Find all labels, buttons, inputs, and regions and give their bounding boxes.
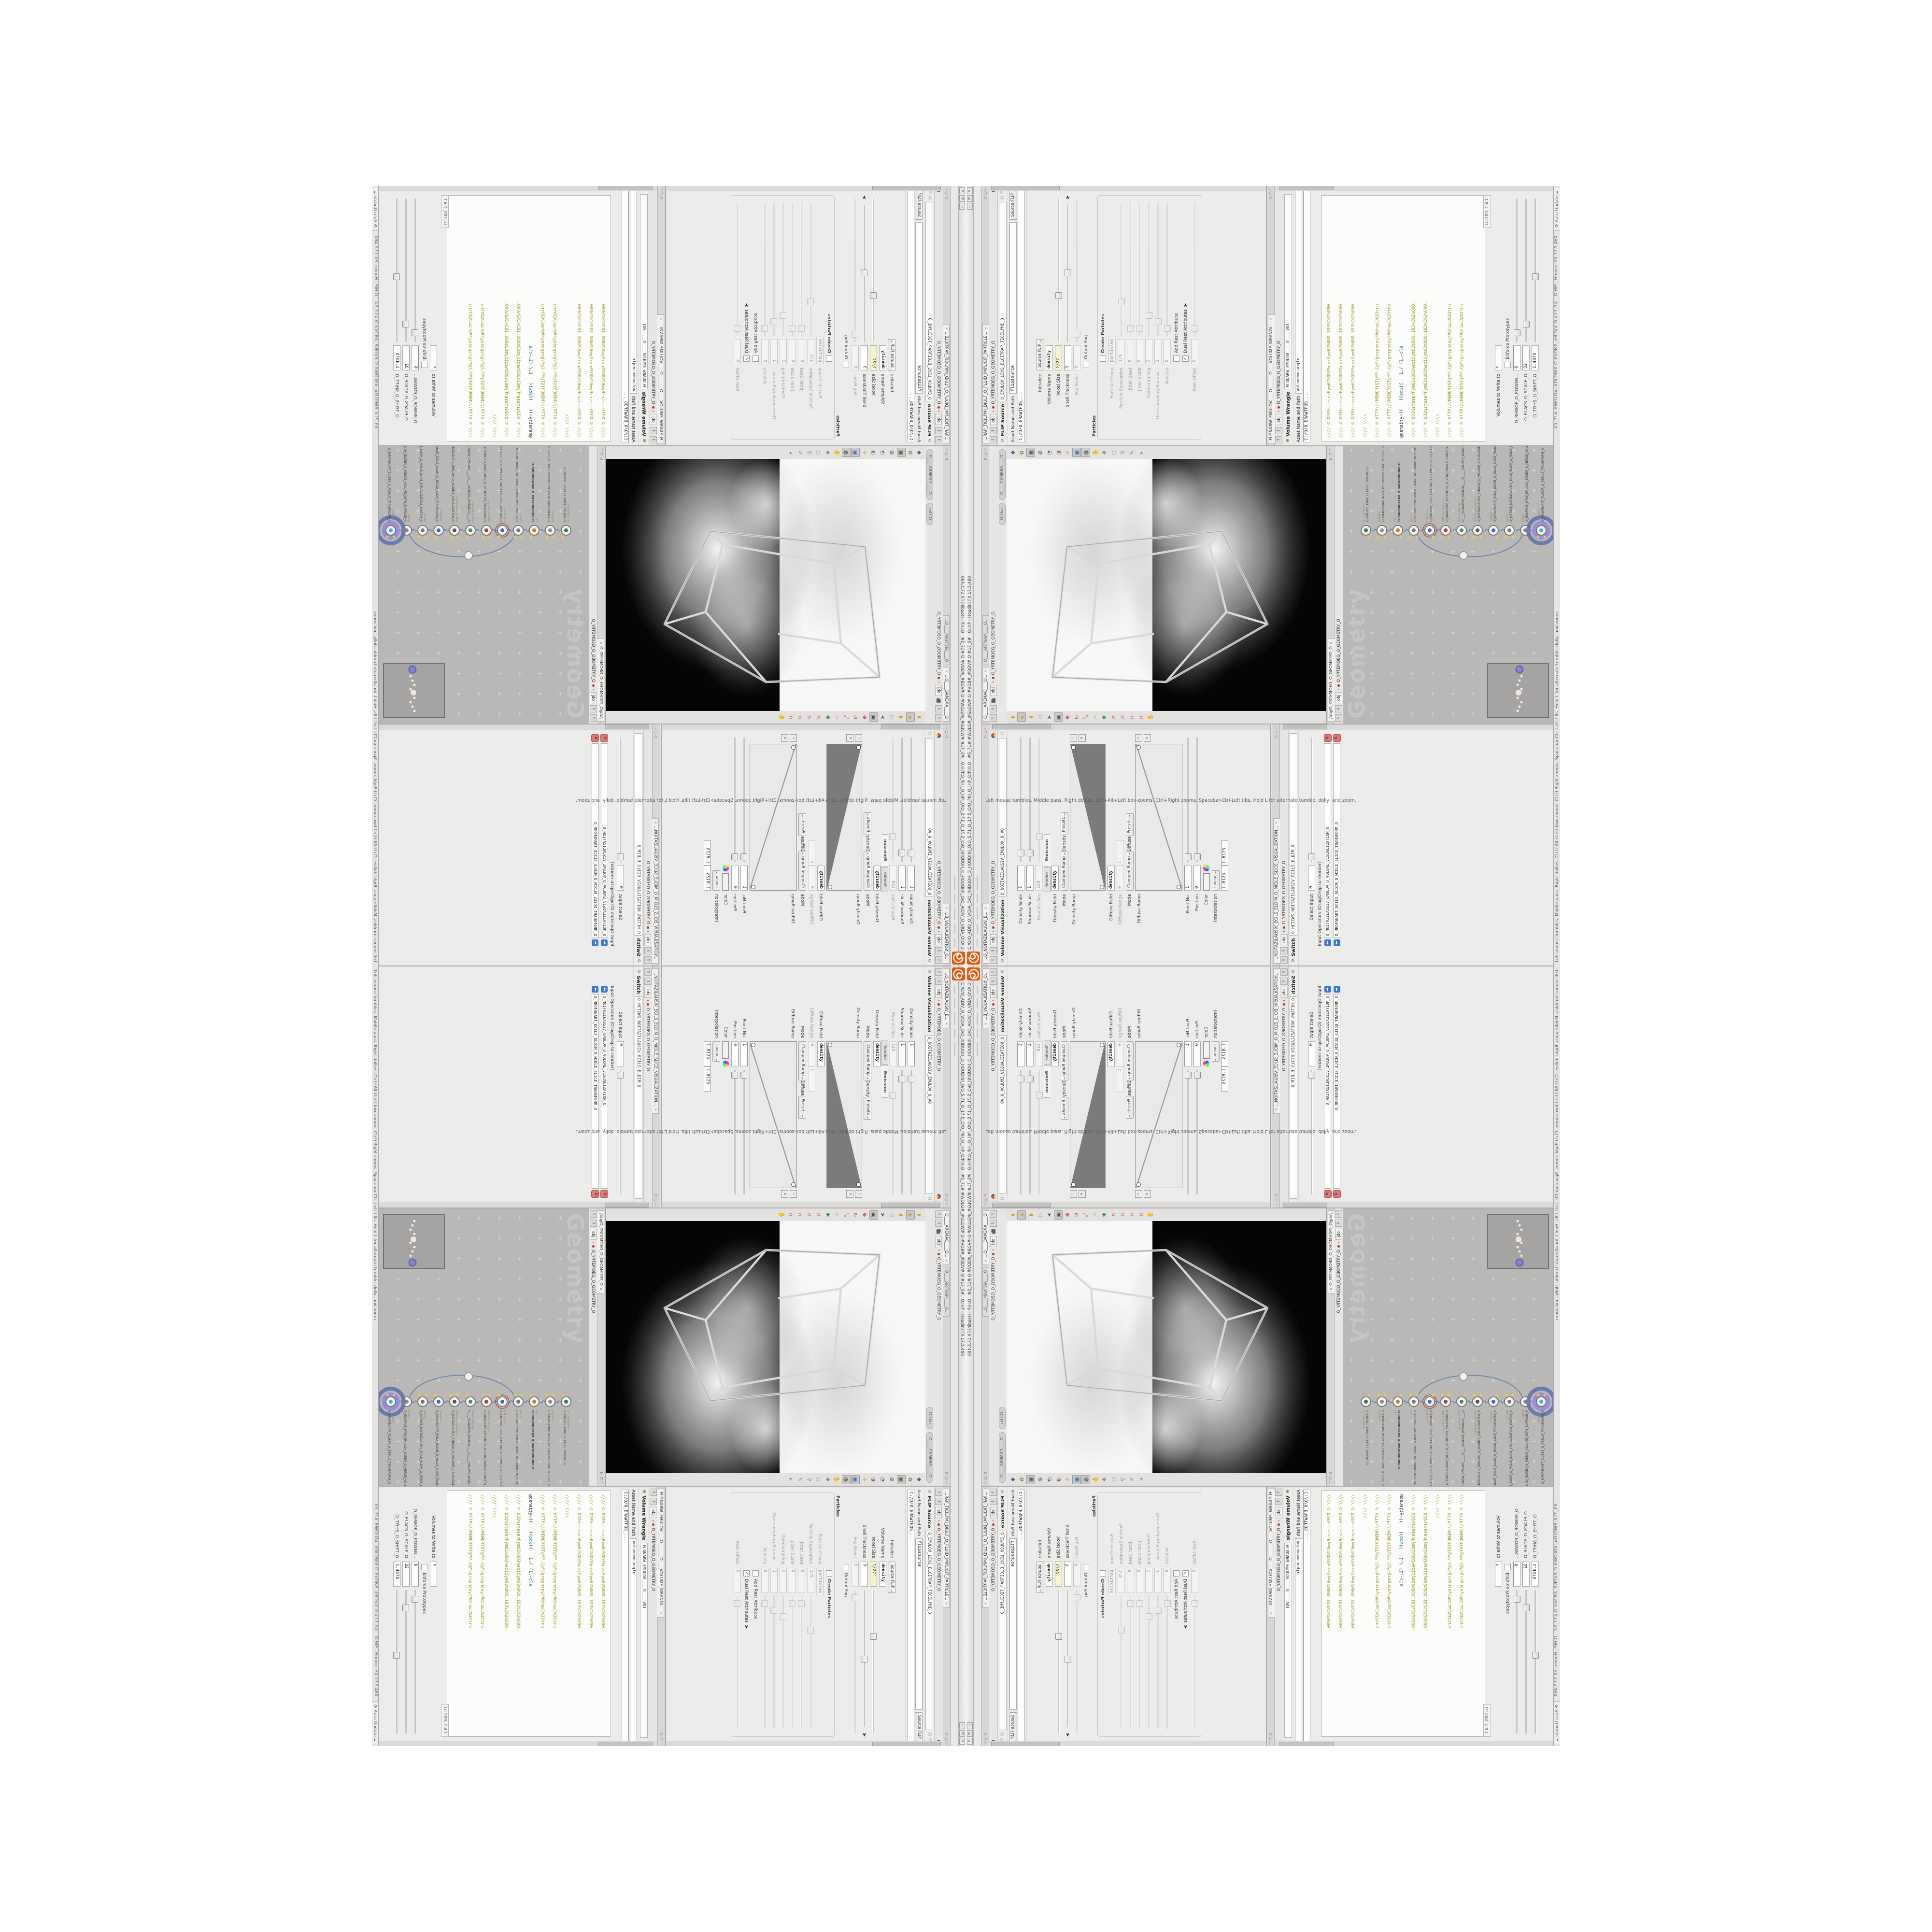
param-field[interactable]: particles xyxy=(816,337,824,364)
ortho-pill[interactable]: Ortho xyxy=(999,1407,1006,1429)
toolbar-icon[interactable]: ▸ xyxy=(787,1475,796,1484)
tab-network[interactable]: /obj/O_YRTEMOEG_O_GEOMETRY_O xyxy=(1329,1213,1334,1286)
toolbar-icon[interactable]: ✛ xyxy=(860,1475,869,1484)
param-field[interactable]: 1/27 xyxy=(1055,1562,1062,1587)
param-field[interactable]: 1 xyxy=(898,1041,906,1066)
slider-knob[interactable] xyxy=(403,321,410,327)
pane-tabstrip[interactable]: ELGNARW_EMULOV____O_______O____VOLUME_WR… xyxy=(1267,1487,1275,1746)
network-node[interactable]: SwitchO_HCTIWS_YRTEMOEG_LANRETXE_LANRETN… xyxy=(1409,446,1419,539)
window-titlebar[interactable]: C:/O/O_ADIV_O_VIDIA_O/O_INIDUOH_O_HOUDIN… xyxy=(958,186,966,966)
network-node[interactable]: SwitchO_HCTIWS_NOITAZILAUSIV_ECILS_ELDIM… xyxy=(418,446,427,539)
menu-item[interactable] xyxy=(954,907,955,920)
pane-pathbar[interactable]: ⬆ ⬇ obj › O_YRTEMOEG_O_GEOMETRY_O xyxy=(934,186,943,445)
toolbar-icon[interactable]: ◔ xyxy=(1045,1475,1053,1484)
vex-code-editor[interactable]: //// © 0D3%steserPym62%0D3%eziSym62%000.… xyxy=(447,1491,611,1737)
path-network[interactable]: O_YRTEMOEG_O_GEOMETRY_O xyxy=(937,861,941,924)
ramp-add-button[interactable]: ＋ xyxy=(1135,734,1142,742)
nav-down-icon[interactable]: ⬇ xyxy=(990,1220,997,1227)
ramp-widget[interactable] xyxy=(1135,744,1182,891)
param-field[interactable]: 1.8125 xyxy=(1221,1066,1228,1092)
slider-knob[interactable] xyxy=(1136,1600,1143,1607)
path-root[interactable]: obj xyxy=(936,934,942,945)
param-field[interactable]: 0 xyxy=(761,339,768,364)
slider-knob[interactable] xyxy=(762,325,768,332)
nav-down-icon[interactable]: ⬇ xyxy=(935,1498,942,1505)
close-button[interactable]: ✕ xyxy=(960,1738,966,1745)
network-node[interactable]: SwitchO_HCTIWS_YRTEMOEG_LANRETXE_LANRETN… xyxy=(513,446,523,539)
path-network[interactable]: O_YRTEMOEG_O_GEOMETRY_O xyxy=(1282,1008,1287,1071)
param-field[interactable]: 1.8125 xyxy=(704,1066,711,1092)
close-button[interactable]: ✕ xyxy=(967,1738,973,1745)
asset-name-field[interactable]: volumewrangle xyxy=(1295,1538,1302,1744)
gear-icon[interactable]: ⚙ xyxy=(1291,959,1296,963)
slider-knob[interactable] xyxy=(771,319,778,326)
gear-icon[interactable]: ⚙ xyxy=(927,1490,932,1493)
param-field[interactable]: 0 xyxy=(734,1568,741,1593)
nav-up-icon[interactable]: ⬆ xyxy=(990,956,997,964)
path-root[interactable]: obj xyxy=(990,934,997,945)
dropdown[interactable]: Linear xyxy=(713,1041,721,1062)
toolbar-icon[interactable]: ✥ xyxy=(1063,1210,1072,1220)
toolbar-icon[interactable]: ❖ xyxy=(1100,448,1108,457)
param-slider[interactable] xyxy=(405,199,407,342)
tab-network[interactable]: /obj/O_YRTEMOEG_O_GEOMETRY_O xyxy=(598,1213,603,1286)
param-slider[interactable] xyxy=(801,1596,803,1729)
tab-volume-visualization[interactable]: ...O_NOITAZILAUSIV_E... xyxy=(983,971,988,1021)
operator-path-field[interactable]: O_NOITAZILAUSIV_EMULOV_O_VOLUME_VISUALIZ… xyxy=(1324,743,1331,938)
network-node[interactable]: TransformO_MROFSNART_TLUSER_O_RESULT_TRA… xyxy=(379,448,404,543)
ramp-delete-button[interactable]: ✕ xyxy=(846,1190,853,1198)
slider-knob[interactable] xyxy=(1192,1600,1198,1607)
menu-item[interactable] xyxy=(977,985,978,994)
nav-up-icon[interactable]: ⬆ xyxy=(990,968,997,976)
network-minimap[interactable] xyxy=(384,664,444,718)
param-slider[interactable] xyxy=(801,203,803,336)
param-slider[interactable] xyxy=(396,1590,398,1733)
path-network[interactable]: O_YRTEMOEG_O_GEOMETRY_O xyxy=(991,861,996,924)
asset-name-field[interactable]: flipsource xyxy=(915,1538,923,1709)
dropdown[interactable]: Presets xyxy=(1061,812,1068,835)
toolbar-icon[interactable]: ✋ xyxy=(1146,1210,1154,1220)
slider-knob[interactable] xyxy=(394,1652,400,1659)
node-name-field[interactable]: O_NOITAZILAUSIV_EMULOV_O_VO xyxy=(925,738,933,897)
nav-down-icon[interactable]: ⬇ xyxy=(1280,947,1288,954)
param-slider[interactable] xyxy=(1139,203,1141,336)
toolbar-icon[interactable]: ∩ xyxy=(787,1210,796,1220)
pane-split-icon[interactable]: ▷ xyxy=(659,196,664,199)
nav-down-icon[interactable]: ⬇ xyxy=(990,427,997,434)
asset-path-field[interactable]: C:/O/O_ERAWTFOS_... xyxy=(1303,188,1310,442)
param-slider[interactable] xyxy=(414,1590,416,1733)
path-root[interactable]: obj xyxy=(590,1229,597,1240)
ramp-delete-button[interactable]: ✕ xyxy=(1079,734,1086,742)
param-field[interactable]: 6 xyxy=(412,1562,419,1587)
toolbar-icon[interactable]: ▣ xyxy=(1072,448,1081,457)
param-slider[interactable] xyxy=(1121,203,1122,336)
asset-menu[interactable]: Source FLIP xyxy=(915,1712,923,1744)
node-name-field[interactable]: O_HCTIWS_NOITAZILAUSIV_ECILS_ELDIM_O xyxy=(1290,996,1297,1199)
pane-maximize-icon[interactable]: ◻ xyxy=(945,1477,949,1480)
toolbar-icon[interactable]: ❖ xyxy=(1100,1475,1108,1484)
path-network[interactable]: O_YRTEMOEG_O_GEOMETRY_O xyxy=(591,619,596,682)
param-field[interactable]: 0 xyxy=(798,1568,805,1593)
pane-tabstrip[interactable]: ...NOITAZILAUSIV_ECILS_ELDIM_O_MIDLE_SLI… xyxy=(652,966,660,1207)
param-field[interactable]: 1 xyxy=(908,866,915,891)
param-field[interactable]: 1.8125 xyxy=(1221,840,1228,866)
viewport-left-toolbar[interactable]: ◗◈◖◁➤▣✥↻⤡✂✱∩∩∩∩✋ xyxy=(606,1208,925,1222)
toolbar-icon[interactable]: ∩ xyxy=(1109,1210,1118,1220)
network-node[interactable]: Volume VisualizationO_NOITAZILAUSIV_EMUL… xyxy=(1473,446,1482,539)
toolbar-icon[interactable]: ✿ xyxy=(906,448,915,457)
nav-down-icon[interactable]: ⬇ xyxy=(935,1220,942,1227)
toolbar-icon[interactable]: ○ xyxy=(1109,1475,1118,1484)
slider-knob[interactable] xyxy=(1055,1633,1062,1640)
tab-close-icon[interactable]: ✕ xyxy=(944,1259,948,1262)
pane-split-icon[interactable]: ▷ xyxy=(945,735,949,738)
path-network[interactable]: O_YRTEMOEG_O_GEOMETRY_O xyxy=(1336,619,1341,682)
nav-down-icon[interactable]: ⬇ xyxy=(644,978,652,985)
slider-knob[interactable] xyxy=(1532,273,1539,280)
minimize-button[interactable]: ▭ xyxy=(967,1722,973,1729)
ramp-delete-button[interactable]: ✕ xyxy=(781,1190,788,1198)
maximize-button[interactable]: ⧉ xyxy=(967,195,973,202)
ramp-widget[interactable] xyxy=(1070,744,1106,891)
param-slider[interactable] xyxy=(1076,199,1078,342)
param-field[interactable]: 0 xyxy=(1117,1041,1124,1066)
pane-pathbar[interactable]: ⬆ ⬇ obj › O_YRTEMOEG_O_GEOMETRY_O xyxy=(989,1487,998,1746)
auto-update-menu[interactable]: ⟳ Auto Update ◂▸ xyxy=(1554,1701,1560,1744)
toolbar-icon[interactable]: ✛ xyxy=(1063,448,1072,457)
param-field[interactable]: 1 xyxy=(1154,339,1162,364)
ramp-handle[interactable] xyxy=(1071,1182,1076,1187)
toolbar-icon[interactable]: ◔ xyxy=(879,448,887,457)
network-node[interactable]: VDB from PolygonsO_SNOGILOP_YRTEMOEG_O_V… xyxy=(1441,1393,1450,1486)
toolbar-icon[interactable]: ✂ xyxy=(833,713,841,722)
menubar[interactable] xyxy=(951,186,958,966)
slider-knob[interactable] xyxy=(1164,1600,1171,1607)
network-node[interactable]: an_CubeSphereO_EREHPS_EBUC_O_CUBE_SPHERE… xyxy=(561,1393,571,1464)
tab-switch[interactable]: ...NOITAZILAUSIV_ECILS_ELDIM_O_MIDLE_SLI… xyxy=(1274,826,1279,961)
toolbar-icon[interactable]: ⚲ xyxy=(805,1475,814,1484)
toolbar-icon[interactable]: ◑ xyxy=(1054,448,1063,457)
param-field[interactable]: 0 xyxy=(852,345,859,370)
dropdown[interactable]: Clamped Ramp xyxy=(799,1041,807,1080)
nav-down-icon[interactable]: ⬇ xyxy=(935,947,942,954)
pane-tabstrip[interactable]: ...RAP_TICILPMI_DIULF_O_FLUID_IMPLICIT_P… xyxy=(943,1487,951,1746)
path-root[interactable]: obj xyxy=(1281,934,1288,945)
pane-pathbar[interactable]: ⬆ ⬇ obj › O_YRTEMOEG_O_GEOMETRY_O xyxy=(643,724,652,966)
slider-knob[interactable] xyxy=(808,1627,814,1634)
asset-name-field[interactable]: volumewrangle xyxy=(630,1538,637,1744)
pane-maximize-icon[interactable]: ◻ xyxy=(1268,191,1273,195)
slider-knob[interactable] xyxy=(798,325,805,332)
toolbar-icon[interactable]: ∩ xyxy=(1127,1210,1136,1220)
param-field[interactable]: 6 xyxy=(1513,345,1520,370)
dropdown[interactable]: Clamped Ramp xyxy=(864,1041,872,1080)
node-name-field[interactable]: O_NOITAZILAUSIV_EMULOV_O_VO xyxy=(999,738,1007,897)
toolbar-icon[interactable]: ◑ xyxy=(1054,1475,1063,1484)
path-root[interactable]: obj xyxy=(650,414,657,425)
color-swatch[interactable] xyxy=(723,873,729,891)
pane-pathbar[interactable]: ⬆ ⬇ obj › O_YRTEMOEG_O_GEOMETRY_O xyxy=(649,1487,657,1746)
network-node[interactable]: an_CubeSphereO_EREHPS_EBUC_O_CUBE_SPHERE… xyxy=(1361,1393,1371,1464)
toolbar-icon[interactable]: ◍ xyxy=(1081,1475,1090,1484)
toolbar-icon[interactable]: ⤡ xyxy=(842,1210,851,1220)
vertical-scrollbar[interactable] xyxy=(662,724,943,730)
nav-up-icon[interactable]: ⬆ xyxy=(1280,968,1288,976)
nav-up-icon[interactable]: ⬆ xyxy=(990,1210,997,1218)
param-slider[interactable] xyxy=(1516,1590,1518,1733)
network-node[interactable]: PolyWireO_EMARFERIW_NOGYLOP_EREHPS_EBUC_… xyxy=(1377,446,1387,539)
menu-item[interactable] xyxy=(954,894,955,903)
path-root[interactable]: obj xyxy=(936,685,942,696)
param-slider[interactable] xyxy=(792,1596,794,1729)
toolbar-icon[interactable]: ◑ xyxy=(869,448,878,457)
nav-up-icon[interactable]: ⬆ xyxy=(1335,714,1342,722)
toolbar-icon[interactable]: ✎ xyxy=(796,1475,805,1484)
pane-pathbar[interactable]: ⬆ ⬇ 🎬 obj › O_YRTEMOEG_O_GEOMETRY_O xyxy=(989,446,998,724)
toolbar-icon[interactable]: ◍ xyxy=(1081,448,1090,457)
camera-pill[interactable]: O____CAMERA____O xyxy=(927,449,934,500)
pane-tabstrip[interactable]: ...NOITAZILAUSIV_ECILS_ELDIM_O_MIDLE_SLI… xyxy=(1272,724,1280,966)
asset-name-field[interactable]: flipsource xyxy=(915,222,923,393)
toolbar-icon[interactable]: ✂ xyxy=(1091,713,1099,722)
toolbar-icon[interactable]: ◈ xyxy=(1017,713,1026,722)
param-slider[interactable] xyxy=(1130,203,1132,336)
param-field[interactable]: 32 xyxy=(1522,345,1530,370)
ramp-widget[interactable] xyxy=(750,744,797,891)
network-node[interactable]: Volume VisualizationO_NOITAZILAUSIV_EMUL… xyxy=(450,446,459,539)
folder-tab-smoke[interactable]: Smoke xyxy=(1044,867,1051,892)
pane-maximize-icon[interactable]: ◻ xyxy=(659,191,664,195)
param-field[interactable]: density xyxy=(1108,866,1115,891)
toolbar-icon[interactable]: ∩ xyxy=(1136,1210,1145,1220)
pane-pathbar[interactable]: ⬆ ⬇ obj › O_YRTEMOEG_O_GEOMETRY_O xyxy=(1335,446,1343,724)
slider-knob[interactable] xyxy=(403,1605,410,1611)
param-field[interactable]: 0 xyxy=(1127,1568,1134,1593)
param-field[interactable]: 0 xyxy=(1136,1568,1143,1593)
asset-name-field[interactable]: volumewrangle xyxy=(1295,188,1302,394)
param-field[interactable]: 0 xyxy=(808,1041,815,1066)
pane-pathbar[interactable]: ⬆ ⬇ obj › O_YRTEMOEG_O_GEOMETRY_O xyxy=(1280,966,1289,1207)
asset-path-field[interactable]: C:/O/O_ERAWTFOS_... xyxy=(622,1490,629,1744)
nav-down-icon[interactable]: ⬇ xyxy=(1275,1498,1282,1505)
path-root[interactable]: obj xyxy=(1335,1229,1342,1240)
pane-split-icon[interactable]: ▷ xyxy=(1328,1472,1333,1475)
ramp-handle[interactable] xyxy=(751,1043,755,1047)
ramp-add-button[interactable]: ＋ xyxy=(855,1190,862,1198)
viewport-right-toolbar[interactable]: ◆✿▣⊘◔◑✛▣◍✋❖○⚲✎▸ xyxy=(1007,1473,1326,1486)
toolbar-icon[interactable]: ⚲ xyxy=(1118,1475,1127,1484)
color-swatch[interactable] xyxy=(1203,873,1210,891)
operator-delete-button[interactable]: ✕ xyxy=(1333,1190,1341,1198)
toolbar-icon[interactable]: ✋ xyxy=(1146,713,1154,722)
tab-render-view[interactable]: O____ARTNAM____O... xyxy=(983,618,988,662)
network-minimap[interactable] xyxy=(1488,664,1548,718)
color-wheel-icon[interactable] xyxy=(723,865,729,871)
network-node[interactable]: TransformO_MROFSNART_TLUSER_O_RESULT_TRA… xyxy=(1528,1389,1553,1484)
slider-knob[interactable] xyxy=(1146,1613,1152,1620)
maximize-button[interactable]: ⧉ xyxy=(960,1730,966,1737)
toolbar-icon[interactable]: ∩ xyxy=(796,713,805,722)
nav-up-icon[interactable]: ⬆ xyxy=(935,1210,942,1218)
pane-pathbar[interactable]: ⬆ ⬇ obj › O_YRTEMOEG_O_GEOMETRY_O 📌 xyxy=(934,966,943,1207)
tab-close-icon[interactable]: ✕ xyxy=(944,907,948,909)
tab-volume-visualization[interactable]: ...O_NOITAZILAUSIV_E... xyxy=(983,911,988,961)
toolbar-icon[interactable]: ◁ xyxy=(888,1210,896,1220)
menu-item[interactable] xyxy=(977,938,978,947)
param-slider[interactable] xyxy=(1076,1590,1078,1733)
path-network[interactable]: O_YRTEMOEG_O_GEOMETRY_O xyxy=(1282,861,1287,924)
toolbar-icon[interactable]: ▣ xyxy=(1026,448,1035,457)
ramp-handle[interactable] xyxy=(828,1043,832,1047)
toolbar-icon[interactable]: ○ xyxy=(1109,448,1118,457)
tab-close-icon[interactable]: ✕ xyxy=(984,327,988,330)
dropdown[interactable]: Clamped Ramp xyxy=(1061,852,1068,891)
path-network[interactable]: O_YRTEMOEG_O_GEOMETRY_O xyxy=(991,341,996,404)
toolbar-icon[interactable]: ✱ xyxy=(1100,713,1108,722)
checkbox[interactable] xyxy=(753,1570,759,1577)
slider-knob[interactable] xyxy=(1164,325,1171,332)
ortho-pill[interactable]: Ortho xyxy=(927,1407,934,1429)
path-network[interactable]: O_YRTEMOEG_O_GEOMETRY_O xyxy=(651,341,656,404)
node-name-field[interactable]: ELGNARW_EMULOV____O____VOI xyxy=(640,1543,648,1738)
slider-knob[interactable] xyxy=(861,270,868,276)
param-field[interactable]: density xyxy=(1051,866,1059,891)
nav-up-icon[interactable]: ⬆ xyxy=(1335,1210,1342,1218)
folder-tab-emission[interactable]: Emission xyxy=(881,1065,888,1098)
nav-down-icon[interactable]: ⬇ xyxy=(590,1220,597,1227)
pane-tabstrip[interactable]: ELGNARW_EMULOV____O_______O____VOLUME_WR… xyxy=(657,1487,665,1746)
menu-item[interactable] xyxy=(977,1012,978,1025)
slider-knob[interactable] xyxy=(1074,1594,1080,1601)
param-slider[interactable] xyxy=(854,1590,856,1733)
pane-maximize-icon[interactable]: ◻ xyxy=(1274,730,1278,734)
toolbar-icon[interactable]: ◖ xyxy=(897,713,906,722)
nav-up-icon[interactable]: ⬆ xyxy=(935,436,942,443)
operator-path-field[interactable]: O_MROFSNART_ECILS_ELDIM_O_MIDLE_SLICE_TR… xyxy=(1333,994,1340,1189)
toolbar-icon[interactable]: ⊘ xyxy=(1036,448,1044,457)
toolbar-icon[interactable]: ✋ xyxy=(1091,448,1099,457)
vertical-scrollbar[interactable] xyxy=(1275,186,1553,191)
nav-up-icon[interactable]: ⬆ xyxy=(935,968,942,976)
minimize-button[interactable]: ▭ xyxy=(960,1722,966,1729)
slider-knob[interactable] xyxy=(412,1596,419,1603)
slider-knob[interactable] xyxy=(732,853,739,860)
dropdown[interactable]: Clamped Ramp xyxy=(799,852,807,891)
checkbox[interactable] xyxy=(753,355,759,362)
slider-knob[interactable] xyxy=(789,325,796,332)
network-node[interactable]: FLIP SourceO_EMULOV_LEHS_ELCITRAP_TICILP… xyxy=(496,1393,509,1486)
checkbox[interactable] xyxy=(421,1564,427,1570)
network-node[interactable]: PolyWireO_EMARFERIW_NOGYLOP_EREHPS_EBUC_… xyxy=(545,446,555,539)
param-slider[interactable] xyxy=(1534,199,1536,342)
window-titlebar[interactable]: C:/O/O_ADIV_O_VIDIA_O/O_INIDUOH_O_HOUDIN… xyxy=(966,186,974,966)
path-root[interactable]: obj xyxy=(650,1507,657,1518)
tab-close-icon[interactable]: ✕ xyxy=(944,327,948,330)
color-wheel-icon[interactable] xyxy=(1203,865,1209,871)
ramp-add-button[interactable]: ＋ xyxy=(1135,1190,1142,1198)
operator-delete-button[interactable]: ✕ xyxy=(1324,734,1332,742)
param-field[interactable]: 0 xyxy=(1136,339,1143,364)
pane-split-icon[interactable]: ▷ xyxy=(1274,735,1278,738)
path-network[interactable]: O_YRTEMOEG_O_GEOMETRY_O xyxy=(991,611,996,675)
pane-pathbar[interactable]: ⬆ ⬇ obj › O_YRTEMOEG_O_GEOMETRY_O xyxy=(589,446,597,724)
pane-pathbar[interactable]: ⬆ ⬇ obj › O_YRTEMOEG_O_GEOMETRY_O xyxy=(934,1487,943,1746)
param-field[interactable]: 128 xyxy=(889,1041,896,1066)
gear-icon[interactable]: ⚙ xyxy=(636,969,641,973)
operator-delete-button[interactable]: ✕ xyxy=(601,734,609,742)
network-node[interactable]: FLIP SourceO_EMULOV_LEHS_ELCITRAP_TICILP… xyxy=(1423,446,1436,539)
maximize-button[interactable]: ⧉ xyxy=(960,195,966,202)
tab-close-icon[interactable]: ✕ xyxy=(944,670,948,673)
param-field[interactable]: 0 xyxy=(1164,1568,1171,1593)
toolbar-icon[interactable]: ⚲ xyxy=(1118,448,1127,457)
param-field[interactable]: 32 xyxy=(402,345,410,370)
param-slider[interactable] xyxy=(782,203,784,336)
param-field[interactable]: 0 xyxy=(761,1568,768,1593)
window-titlebar[interactable]: C:/O/O_ADIV_O_VIDIA_O/O_INIDUOH_O_HOUDIN… xyxy=(966,966,974,1746)
pane-maximize-icon[interactable]: ◻ xyxy=(1268,1737,1273,1741)
pane-maximize-icon[interactable]: ◻ xyxy=(945,191,949,195)
ramp-handle[interactable] xyxy=(856,1182,861,1187)
pane-maximize-icon[interactable]: ◻ xyxy=(983,1477,987,1480)
menu-item[interactable] xyxy=(977,876,978,890)
path-root[interactable]: obj xyxy=(645,934,652,945)
vertical-scrollbar[interactable] xyxy=(989,186,1266,191)
pane-pathbar[interactable]: ⬆ ⬇ obj › O_YRTEMOEG_O_GEOMETRY_O xyxy=(1275,1487,1283,1746)
dropdown[interactable]: Clamped Ramp xyxy=(1126,1041,1134,1080)
tab-close-icon[interactable]: ✕ xyxy=(1275,1108,1279,1111)
param-field[interactable]: density xyxy=(1046,1562,1053,1587)
nav-down-icon[interactable]: ⬇ xyxy=(1335,1220,1342,1227)
param-slider[interactable] xyxy=(873,199,875,342)
param-field[interactable]: 1.8125 xyxy=(704,866,711,891)
tab-volume-visualization[interactable]: ...O_NOITAZILAUSIV_E... xyxy=(944,971,949,1021)
slider-knob[interactable] xyxy=(890,1092,896,1099)
param-slider[interactable] xyxy=(1166,203,1168,336)
maximize-button[interactable]: ⧉ xyxy=(967,1730,973,1737)
checkbox[interactable]: ✓ xyxy=(1182,1570,1189,1577)
toolbar-icon[interactable]: ✱ xyxy=(824,1210,832,1220)
network-node[interactable]: SwitchO_HCTIWS_NOITAZILAUSIV_ECILS_ELDIM… xyxy=(1505,446,1514,539)
node-name-field[interactable]: O_HCTIWS_NOITAZILAUSIV_ECILS_ELDIM_O xyxy=(1290,733,1297,936)
close-button[interactable]: ✕ xyxy=(967,187,973,194)
param-field[interactable]: 32 xyxy=(1522,1562,1530,1587)
reorder-arrow-icon[interactable]: ⬅ xyxy=(1334,986,1340,993)
dropdown[interactable]: Presets xyxy=(1061,1097,1068,1120)
camera-pill[interactable]: O____CAMERA____O xyxy=(999,449,1006,500)
toolbar-icon[interactable]: ∩ xyxy=(796,1210,805,1220)
path-network[interactable]: O_YRTEMOEG_O_GEOMETRY_O xyxy=(1277,341,1281,404)
reorder-arrow-icon[interactable]: ⬅ xyxy=(592,939,599,946)
tab-flip-source[interactable]: ...RAP_TICILPMI_DIULF_O_FLUID_IMPLICIT_P… xyxy=(944,332,949,440)
toolbar-icon[interactable]: ✿ xyxy=(906,1475,915,1484)
node-name-field[interactable]: O_NOITAZILAUSIV_EMULOV_O_VO xyxy=(925,1035,933,1194)
param-field[interactable]: 2 xyxy=(1145,339,1152,364)
toolbar-icon[interactable]: ∩ xyxy=(1136,713,1145,722)
pane-tabstrip[interactable]: ...O_NOITAZILAUSIV_E...✕ ▷◻∷ xyxy=(981,724,989,966)
slider-knob[interactable] xyxy=(852,1594,859,1601)
pane-tabstrip[interactable]: O____AREMAC____O...✕ O____ARTNAM____O...… xyxy=(943,1208,951,1486)
param-field[interactable]: 0 xyxy=(617,866,624,891)
viewport-right-toolbar[interactable]: ◆✿▣⊘◔◑✛▣◍✋❖○⚲✎▸ xyxy=(606,1473,925,1486)
menubar[interactable] xyxy=(951,966,958,1746)
asset-path-field[interactable]: C:/O/O_ERAWTFOS_... xyxy=(622,188,629,442)
slider-knob[interactable] xyxy=(861,1656,868,1662)
menu-item[interactable] xyxy=(954,938,955,947)
toolbar-icon[interactable]: ✎ xyxy=(1127,1475,1136,1484)
